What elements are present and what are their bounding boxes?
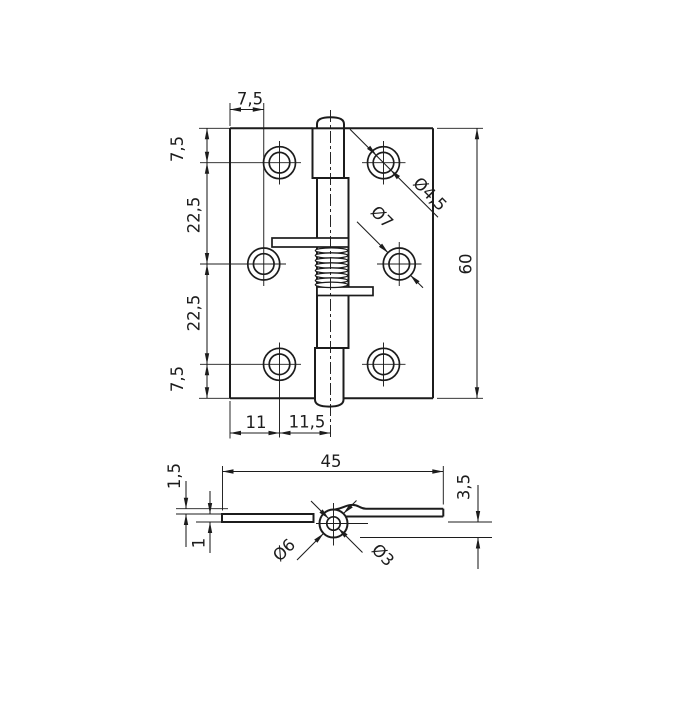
side-view: 45 1,5 1 3,5 xyxy=(165,452,492,570)
side-knuckle xyxy=(316,503,368,546)
spring xyxy=(272,238,373,296)
dim-label-left-4: 7,5 xyxy=(168,366,187,392)
dim-label-width: 45 xyxy=(321,452,342,471)
dim-left-chain: 7,5 22,5 22,5 7,5 xyxy=(168,128,230,398)
dim-label-knuckle-protrusion: 3,5 xyxy=(455,474,474,500)
dim-height: 60 xyxy=(437,128,483,398)
dim-leaf-offset: 1,5 xyxy=(165,463,228,547)
spring-arm-left xyxy=(272,238,349,247)
leader-pin-diameter: Ø3 xyxy=(311,501,398,570)
dim-width: 45 xyxy=(223,452,444,511)
dim-label-height: 60 xyxy=(457,254,476,275)
side-leaf-left xyxy=(222,514,314,522)
dim-leaf-thickness: 1 xyxy=(190,491,223,553)
front-view: 7,5 7,5 22,5 22,5 7,5 xyxy=(168,90,483,439)
knuckle-bottom-segment xyxy=(315,348,344,407)
dim-label-left-1: 7,5 xyxy=(168,136,187,162)
leader-hole-diameter: Ø4,5 xyxy=(350,129,450,217)
leader-label-knuckle-diameter: Ø6 xyxy=(269,535,299,565)
spring-arm-right xyxy=(317,287,373,296)
dim-label-left-3: 22,5 xyxy=(185,295,204,332)
dim-bottom: 11 11,5 xyxy=(230,401,331,439)
dim-label-top-offset: 7,5 xyxy=(237,90,263,109)
hinge-technical-drawing: 7,5 7,5 22,5 22,5 7,5 xyxy=(0,0,683,707)
leader-label-countersink-diameter: Ø7 xyxy=(367,202,397,232)
dim-label-bottom-11-5: 11,5 xyxy=(289,413,326,432)
drawing-page: 7,5 7,5 22,5 22,5 7,5 xyxy=(0,0,683,707)
dim-top-offset: 7,5 xyxy=(230,90,264,127)
dim-label-bottom-11: 11 xyxy=(246,413,267,432)
leader-label-pin-diameter: Ø3 xyxy=(368,540,398,570)
dim-label-left-2: 22,5 xyxy=(185,197,204,234)
dim-label-leaf-offset: 1,5 xyxy=(165,463,184,489)
knuckle-top-segment xyxy=(313,128,345,178)
dim-label-leaf-thickness: 1 xyxy=(190,538,209,549)
